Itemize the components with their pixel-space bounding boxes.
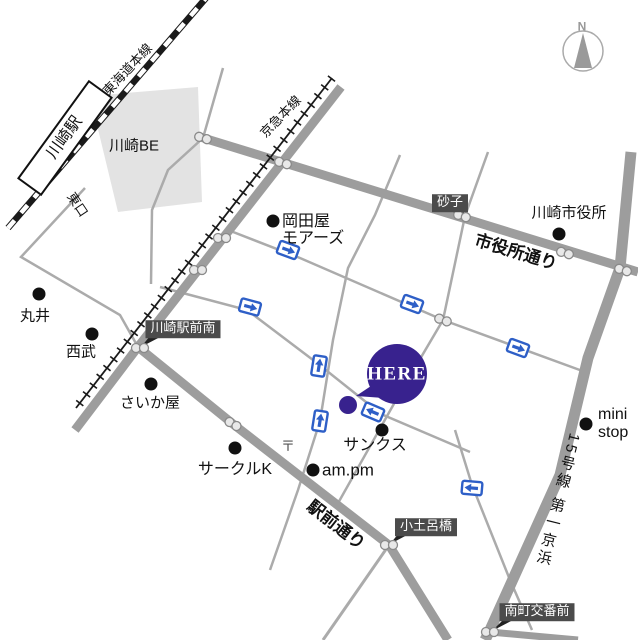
one-way-arrow-icon — [312, 410, 328, 432]
saikaya-label: さいか屋 — [120, 396, 180, 413]
traffic-signal-icon — [132, 344, 149, 353]
one-way-arrow-icon — [400, 294, 423, 313]
south-street — [455, 430, 532, 630]
one-way-arrow-icon — [361, 402, 384, 422]
map-canvas: 川崎駅 東海道本線 京急本線 川崎BE 東口 岡田屋 モアーズ 砂子 市役所通り… — [0, 0, 638, 640]
traffic-signal-icon — [214, 234, 231, 243]
kawasaki-be-label: 川崎BE — [109, 139, 159, 156]
traffic-signal-icon — [190, 266, 207, 275]
poi-dot — [33, 288, 46, 301]
compass-north-label: N — [578, 20, 587, 33]
compass-needle — [574, 33, 592, 68]
minamicho-koban-label: 南町交番前 — [499, 603, 574, 621]
marui-label: 丸井 — [20, 309, 50, 326]
sunkus-label: サンクス — [343, 437, 407, 455]
signal-lamp — [222, 234, 231, 243]
okadaya-mores-label-1: 岡田屋 — [282, 213, 330, 231]
okadaya-mores-label-2: モアーズ — [282, 230, 344, 248]
ekimae-branch-road — [323, 545, 389, 640]
circle-k-label: サークルK — [198, 461, 272, 479]
traffic-signal-icon — [381, 541, 398, 550]
city-hall-label: 川崎市役所 — [531, 206, 606, 223]
ministop-label-1: mini — [598, 406, 627, 424]
traffic-signal-icon — [482, 628, 499, 637]
one-way-arrow-icon — [461, 481, 482, 496]
poi-dot — [145, 378, 158, 391]
poi-dot — [229, 442, 242, 455]
poi-dot — [580, 418, 593, 431]
poi-dot — [553, 228, 566, 241]
post-office-icon: 〒 — [281, 439, 295, 455]
ekimae-minami-intersection-label: 川崎駅前南 — [145, 320, 220, 338]
signal-lamp — [389, 541, 398, 550]
traffic-signal-icon — [223, 416, 242, 432]
signal-lamp — [198, 266, 207, 275]
sunako-intersection-label: 砂子 — [432, 194, 468, 212]
one-way-arrow-icon — [311, 355, 327, 377]
poi-dot — [267, 215, 280, 228]
poi-dot — [86, 328, 99, 341]
poi-dot — [307, 464, 320, 477]
am-pm-label: am.pm — [322, 460, 374, 479]
one-way-arrow-icon — [239, 298, 262, 316]
seibu-label: 西武 — [66, 345, 96, 362]
signal-lamp — [140, 344, 149, 353]
kodorobashi-intersection-label: 小土呂橋 — [395, 518, 457, 536]
poi-dot — [376, 424, 389, 437]
ministop-label-2: stop — [598, 424, 628, 442]
one-way-arrow-icon — [506, 338, 529, 357]
minamicho-road — [490, 632, 578, 640]
signal-lamp — [490, 628, 499, 637]
here-location-dot — [339, 396, 357, 414]
here-marker-label: HERE — [367, 363, 427, 384]
route15-road — [485, 152, 631, 640]
